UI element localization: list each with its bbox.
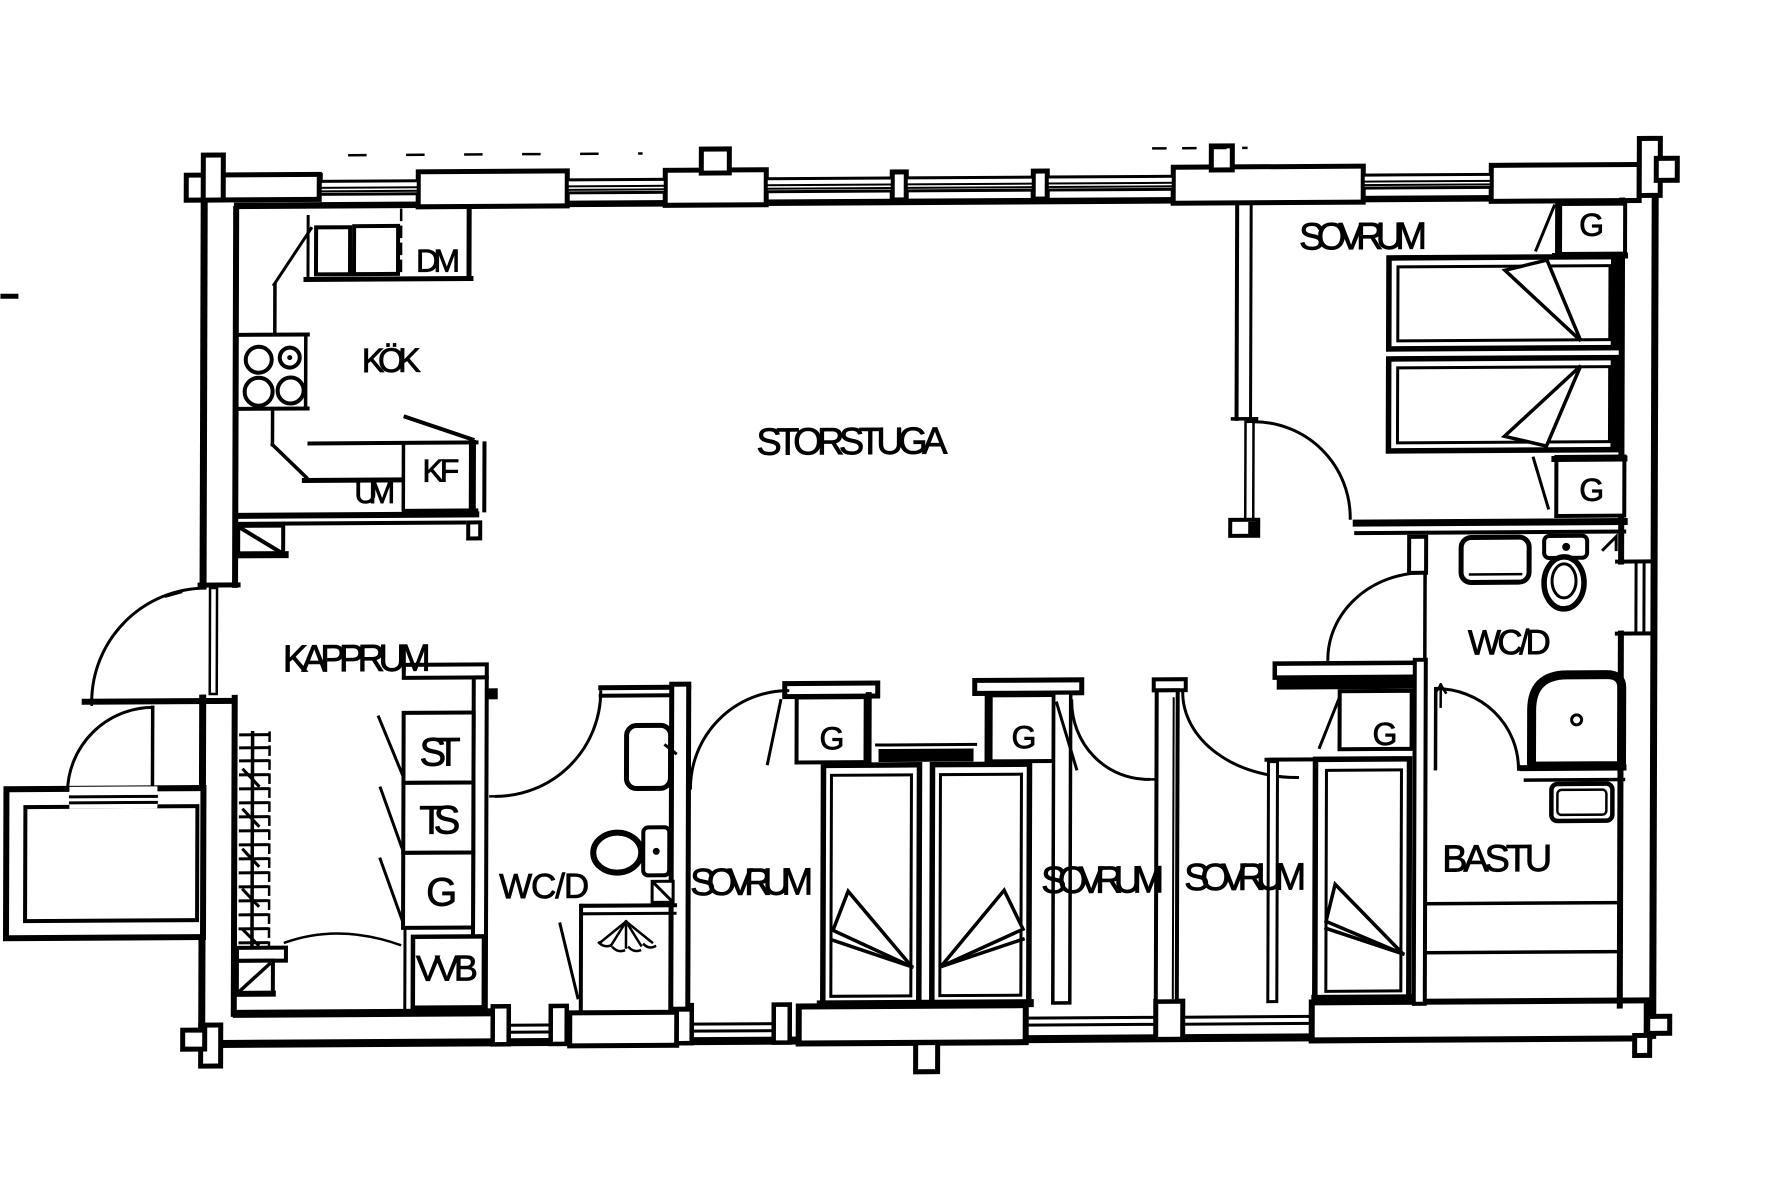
svg-text:G: G	[1012, 719, 1037, 755]
svg-text:KÖK: KÖK	[362, 342, 421, 380]
svg-text:SOVRUM: SOVRUM	[1041, 859, 1164, 902]
svg-text:UM: UM	[354, 474, 395, 510]
svg-text:SOVRUM: SOVRUM	[690, 861, 813, 904]
svg-text:STORSTUGA: STORSTUGA	[756, 421, 948, 464]
svg-text:KF: KF	[422, 453, 459, 489]
svg-text:KAPPRUM: KAPPRUM	[283, 638, 431, 681]
svg-text:G: G	[1579, 472, 1604, 508]
svg-text:BASTU: BASTU	[1442, 838, 1552, 881]
svg-text:SOVRUM: SOVRUM	[1299, 216, 1427, 259]
svg-text:VVB: VVB	[416, 947, 478, 988]
svg-text:WC/D: WC/D	[1468, 623, 1551, 662]
svg-text:G: G	[1373, 716, 1398, 752]
svg-text:G: G	[1579, 207, 1604, 243]
svg-text:G: G	[820, 720, 845, 756]
svg-text:TS: TS	[419, 799, 460, 843]
svg-text:WC/D: WC/D	[499, 867, 589, 907]
svg-text:DM: DM	[416, 243, 460, 279]
svg-text:ST: ST	[419, 731, 460, 775]
svg-text:SOVRUM: SOVRUM	[1184, 856, 1306, 899]
svg-text:G: G	[426, 871, 457, 915]
